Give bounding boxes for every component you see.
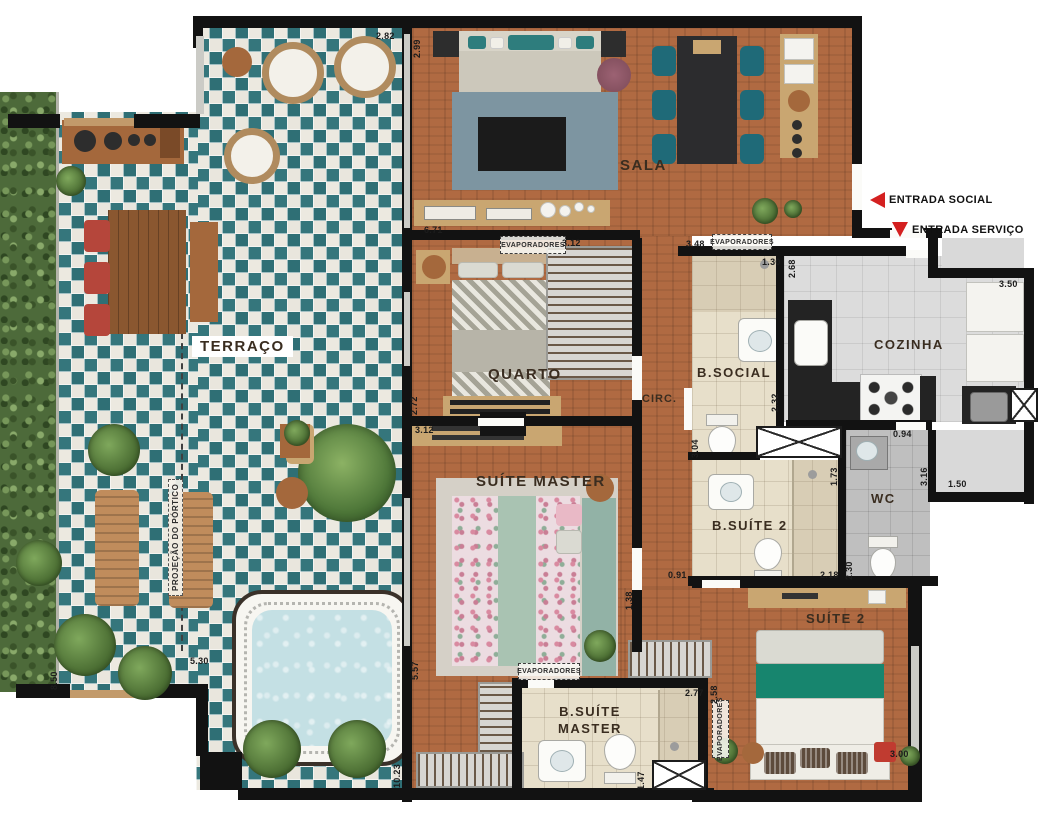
room-label-cozinha: COZINHA	[874, 337, 944, 352]
appliance	[784, 64, 814, 84]
foot-pillow	[800, 748, 830, 768]
dimension-label: 2.82	[376, 31, 395, 41]
dimension-label: 2.72	[409, 396, 419, 415]
appliance-knob	[792, 134, 802, 144]
dimension-label: 1.47	[636, 771, 646, 790]
wall	[692, 790, 922, 802]
room-label-b-suite-master: B.SUÍTE MASTER	[534, 704, 646, 738]
decor-circle	[574, 202, 584, 212]
pillow	[502, 262, 544, 278]
dimension-label: 2.18	[820, 570, 839, 580]
door-opening	[702, 580, 740, 588]
terrace-bench	[190, 222, 218, 322]
shower-head-icon	[808, 470, 817, 479]
side-table	[433, 31, 459, 57]
room-label-b-social: B.SOCIAL	[697, 365, 771, 380]
room-label-suite-master: SUÍTE MASTER	[476, 473, 606, 490]
evaporadores-box: EVAPORADORES	[500, 236, 566, 254]
dining-table	[677, 36, 737, 164]
shaft-x	[1010, 388, 1038, 422]
palm	[328, 720, 386, 778]
bed-green	[498, 496, 536, 666]
evaporadores-box: EVAPORADORES	[712, 234, 772, 250]
side-table	[600, 31, 626, 57]
door-opening	[684, 388, 692, 430]
terrace-dining-table	[108, 210, 186, 334]
dimension-label: 3.00	[890, 749, 909, 759]
dimension-label: 8.50	[49, 671, 59, 690]
palm	[88, 424, 140, 476]
room-label-wc: WC	[871, 491, 896, 506]
room-label-terraco: TERRAÇO	[192, 336, 293, 357]
wall	[512, 678, 522, 790]
basket	[742, 742, 764, 764]
toilet-tank	[604, 772, 636, 784]
bbq-grill	[104, 132, 122, 150]
wall	[632, 426, 642, 548]
window-glass	[404, 498, 410, 646]
hedge	[0, 92, 58, 692]
pillow	[556, 504, 582, 526]
evaporadores-box: EVAPORADORES	[518, 663, 580, 680]
wall	[782, 246, 906, 256]
foot-pillow	[836, 752, 868, 774]
wall	[928, 430, 936, 494]
plant	[56, 166, 86, 196]
appliance-knob	[792, 148, 802, 158]
counter	[832, 382, 862, 422]
bed-lower	[756, 698, 884, 746]
room-label-sala: SALA	[620, 157, 667, 174]
decor-circle	[540, 202, 556, 218]
bbq-board	[160, 126, 180, 158]
dimension-label: 10.23	[392, 764, 402, 788]
wall	[8, 114, 60, 128]
table-runner	[693, 40, 721, 54]
dimension-label: 3.50	[999, 279, 1018, 289]
wall	[238, 788, 408, 800]
shower-head-icon	[670, 742, 679, 751]
divider	[792, 460, 794, 578]
toilet-tank	[706, 414, 738, 426]
bbq-sink	[74, 130, 96, 152]
basin	[550, 750, 574, 772]
mirror	[422, 255, 446, 279]
arrow-left-icon	[870, 192, 885, 208]
room-label-suite-2: SUÍTE 2	[806, 611, 866, 626]
daybed	[224, 128, 280, 184]
floor-entry-landing	[942, 238, 1024, 270]
dimension-label: 1.73	[829, 467, 839, 486]
window-glass	[911, 646, 919, 760]
wall	[852, 16, 862, 164]
dimension-label: 2.32	[770, 393, 780, 412]
terrace-chair	[84, 304, 110, 336]
basin	[856, 441, 878, 461]
desk-item	[868, 590, 886, 604]
dimension-label: 2.58	[709, 685, 719, 704]
cabinet	[966, 334, 1024, 382]
wall	[928, 268, 1034, 278]
dimension-label: 5.57	[410, 661, 420, 680]
door-opening	[478, 418, 524, 426]
portico-projection-label: PROJEÇÃO DO PÓRTICO	[168, 479, 183, 596]
dimension-label: 1.30	[762, 257, 781, 267]
dimension-label: 0.91	[668, 570, 687, 580]
wall	[200, 752, 242, 790]
dimension-label: 2.30	[844, 561, 854, 580]
dimension-label: 0.94	[893, 429, 912, 439]
bed-pillows	[756, 630, 884, 664]
dimension-label: 2.77	[685, 688, 704, 698]
floor-plan: PROJEÇÃO DO PÓRTICO TERRAÇO SALA QUARTO …	[0, 0, 1048, 826]
sink	[794, 320, 828, 366]
basin	[748, 330, 772, 352]
terrace-side-table	[276, 477, 308, 509]
daybed	[334, 36, 396, 98]
stool-table	[222, 47, 252, 77]
wall	[404, 16, 862, 28]
wall	[193, 16, 410, 28]
room-label-b-suite-2: B.SUÍTE 2	[712, 518, 788, 533]
decor-circle	[559, 205, 571, 217]
terrace-lounger	[95, 490, 139, 606]
palm	[243, 720, 301, 778]
arrow-down-icon	[892, 222, 908, 237]
sliding-door-glass	[404, 34, 410, 228]
dimension-label: 3.48	[686, 239, 705, 249]
toilet-tank	[868, 536, 898, 548]
plant	[752, 198, 778, 224]
wall	[632, 238, 642, 356]
door-opening	[528, 680, 554, 688]
window-glass	[196, 36, 204, 114]
daybed	[262, 42, 324, 104]
desk-item	[782, 593, 818, 599]
bed-floral	[452, 496, 498, 666]
service-sink	[970, 392, 1008, 422]
entrance-servico: ENTRADA SERVIÇO	[892, 222, 1024, 237]
dimension-label: 2.99	[412, 39, 422, 58]
palm	[118, 646, 172, 700]
basket	[788, 90, 810, 112]
closet-quarto	[546, 246, 636, 380]
foot-pillow	[764, 752, 796, 774]
room-label-circ: CIRC.	[642, 393, 677, 405]
terrace-chair	[84, 262, 110, 294]
basin	[720, 482, 742, 502]
appliance	[784, 38, 814, 60]
shaft-x	[756, 426, 842, 458]
dining-chair	[740, 90, 764, 120]
bbq-pot	[144, 134, 156, 146]
shaft-x	[652, 760, 706, 790]
bed-teal-band	[756, 664, 884, 698]
terrace-chair	[84, 220, 110, 252]
plant	[284, 420, 310, 446]
wall	[134, 114, 200, 128]
room-label-quarto: QUARTO	[488, 366, 562, 383]
dimension-label: 6.71	[424, 225, 443, 235]
dimension-label: 3.12	[562, 238, 581, 248]
decor-circle	[587, 205, 595, 213]
bed-quarto	[452, 280, 550, 330]
tv-console	[478, 117, 566, 171]
sofa-cushion	[490, 37, 504, 49]
console-item	[486, 208, 532, 220]
pillow	[556, 530, 582, 554]
pouf	[597, 58, 631, 92]
entrance-servico-label: ENTRADA SERVIÇO	[912, 224, 1024, 236]
door-opening	[632, 548, 642, 590]
wall	[928, 492, 1034, 502]
dining-chair	[740, 46, 764, 76]
closet-rack	[478, 682, 516, 754]
console-item	[424, 206, 476, 220]
wall	[856, 228, 892, 238]
dimension-label: 2.68	[787, 259, 797, 278]
dining-chair	[652, 90, 676, 120]
plant	[584, 630, 616, 662]
evaporadores-box: EVAPORADORES	[712, 700, 729, 758]
dimension-label: 3.12	[415, 425, 434, 435]
plant	[784, 200, 802, 218]
dining-chair	[652, 46, 676, 76]
dimension-label: 5.30	[190, 656, 209, 666]
window-sill	[64, 118, 134, 126]
tv	[450, 400, 550, 405]
appliance-knob	[792, 120, 802, 130]
stove	[860, 374, 922, 422]
bbq-pot	[128, 134, 140, 146]
pillow	[458, 262, 498, 278]
door-opening	[632, 356, 642, 400]
counter	[920, 376, 936, 422]
dimension-label: 3.04	[690, 439, 700, 458]
door-opening	[906, 250, 928, 258]
dimension-label: 1.50	[948, 479, 967, 489]
entrance-social-label: ENTRADA SOCIAL	[889, 194, 993, 206]
dimension-label: 3.16	[919, 467, 929, 486]
sofa-cushion	[558, 37, 572, 49]
closet-rack	[416, 752, 524, 788]
dimension-label: 1.38	[624, 591, 634, 610]
palm	[54, 614, 116, 676]
wall	[692, 578, 702, 588]
wall	[16, 684, 70, 698]
cabinet	[966, 282, 1024, 332]
sofa-cushion	[576, 36, 594, 49]
palm	[16, 540, 62, 586]
window-glass	[404, 292, 410, 366]
dining-chair	[740, 134, 764, 164]
sofa-cushion	[468, 36, 486, 49]
door-opening	[852, 164, 862, 210]
sofa-cushion	[508, 35, 554, 50]
entrance-social: ENTRADA SOCIAL	[870, 192, 993, 208]
